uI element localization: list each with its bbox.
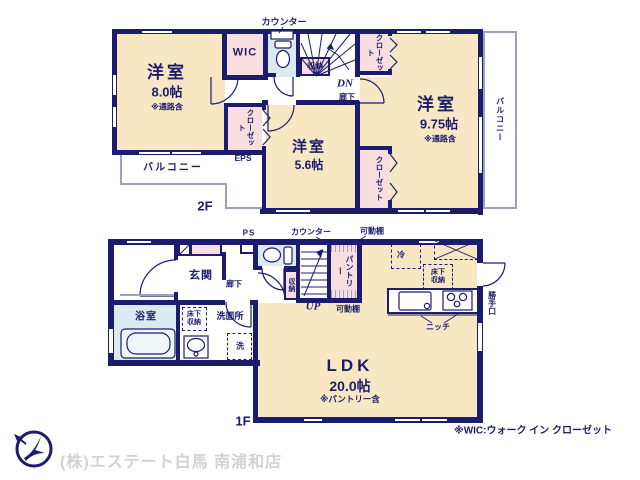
wic-label: WIC — [233, 47, 257, 60]
closet-eps-label: クローゼット — [238, 108, 254, 148]
washroom-label: 洗面所 — [216, 311, 243, 321]
closet-top-label: クローゼット — [367, 33, 383, 73]
shelf-top-label: 可動棚 — [360, 226, 384, 235]
company-logo — [14, 432, 51, 466]
room975-note: ※通路含 — [424, 134, 456, 143]
room8-note: ※通路含 — [151, 102, 183, 111]
room56-size: 5.6帖 — [295, 159, 324, 173]
room56-name: 洋室 — [292, 138, 326, 155]
door-arc-1f-toilet — [262, 268, 284, 290]
dn-label: DN — [337, 78, 353, 91]
washer-label: 洗 — [236, 341, 244, 350]
hallway-2f-label: 廊下 — [339, 92, 355, 101]
back-door-label: 勝手口 — [487, 285, 496, 321]
storage-1f-label: 収納 — [287, 273, 295, 297]
bathroom-label: 浴室 — [135, 311, 157, 323]
washstand — [184, 336, 208, 358]
balcony-left-label: バルコニー — [143, 162, 203, 174]
counter-1f-label: カウンター — [291, 227, 331, 236]
room-2f-toilet — [266, 32, 298, 77]
stairs-1f — [301, 250, 327, 296]
storage-2f-label: 収納 — [307, 61, 323, 70]
fridge-label: 冷 — [397, 250, 405, 259]
ldk-note: ※パントリー含 — [320, 395, 380, 405]
counter-2f-label: カウンター — [261, 17, 306, 27]
movable-shelf-bottom-strip — [331, 290, 357, 298]
wic-footnote: ※WIC:ウォーク イン クローゼット — [454, 425, 612, 437]
ldk-size: 20.0帖 — [329, 378, 370, 394]
room975-size: 9.75帖 — [420, 118, 458, 133]
closet-east-label: クローゼット — [367, 152, 383, 204]
underfloor-wash-label: 床下収納 — [186, 311, 202, 327]
fridge-space — [391, 244, 421, 269]
hallway-1f-label: 廊下 — [226, 279, 242, 288]
door-arc-hall-ldk — [258, 273, 285, 300]
room-1f-toilet — [258, 245, 296, 266]
door-arc-back-door — [483, 263, 505, 286]
entrance-label: 玄関 — [189, 270, 213, 283]
room8-size: 8.0帖 — [151, 86, 182, 101]
underfloor-kitchen-label: 床下収納 — [430, 269, 446, 285]
niche-label: ニッチ — [426, 322, 450, 331]
company-name: (株)エステート白馬 南浦和店 — [60, 448, 282, 472]
movable-shelf-top-strip — [331, 244, 357, 252]
room975-name: 洋室 — [417, 95, 457, 115]
pantry-label: パントリー — [334, 252, 354, 290]
floor1-label: 1F — [235, 415, 250, 430]
floor2-label: 2F — [197, 200, 212, 215]
room8-name: 洋室 — [147, 63, 187, 83]
shelf-bottom-label: 可動棚 — [336, 304, 360, 313]
eps-label: EPS — [234, 154, 251, 164]
door-arc-2f-toilet — [274, 77, 293, 96]
ldk-name: LDK — [327, 356, 374, 376]
balcony-right-label: バルコニー — [495, 89, 504, 149]
up-label: UP — [306, 301, 321, 314]
floor-plan: カウンター 洋室 8.0帖 ※通路含 WIC クローゼット 収納 DN 廊下 洋… — [0, 0, 640, 480]
ps-label: PS — [243, 228, 256, 237]
door-arc-entrance — [140, 260, 176, 296]
